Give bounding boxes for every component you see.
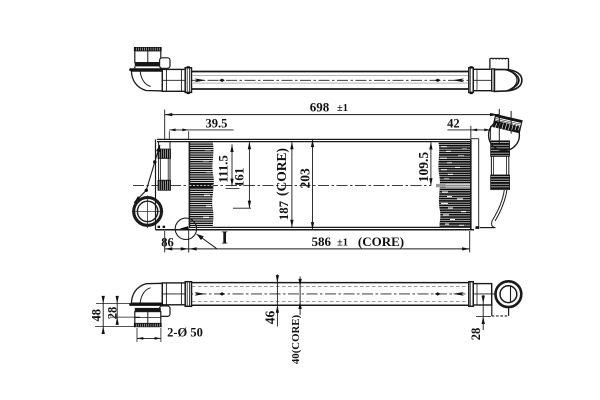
svg-text:(CORE): (CORE) (274, 148, 289, 196)
svg-text:111.5: 111.5 (215, 155, 230, 183)
svg-text:187: 187 (277, 200, 291, 220)
svg-text:±1: ±1 (337, 103, 348, 114)
svg-text:203: 203 (298, 168, 313, 189)
svg-text:86: 86 (161, 235, 174, 249)
svg-text:46: 46 (263, 311, 278, 325)
svg-text:161: 161 (231, 168, 246, 188)
svg-text:42: 42 (447, 116, 460, 130)
svg-text:28: 28 (106, 307, 120, 320)
svg-text:±1: ±1 (337, 238, 348, 249)
svg-text:28: 28 (469, 328, 483, 341)
svg-text:I: I (221, 228, 228, 248)
svg-text:48: 48 (89, 309, 103, 322)
svg-text:586: 586 (312, 234, 332, 249)
svg-text:109.5: 109.5 (416, 152, 431, 183)
svg-text:698: 698 (310, 100, 330, 115)
svg-text:40(CORE): 40(CORE) (290, 315, 302, 365)
svg-text:39.5: 39.5 (205, 116, 227, 130)
svg-text:2-Ø 50: 2-Ø 50 (167, 325, 203, 339)
svg-text:(CORE): (CORE) (358, 234, 404, 249)
